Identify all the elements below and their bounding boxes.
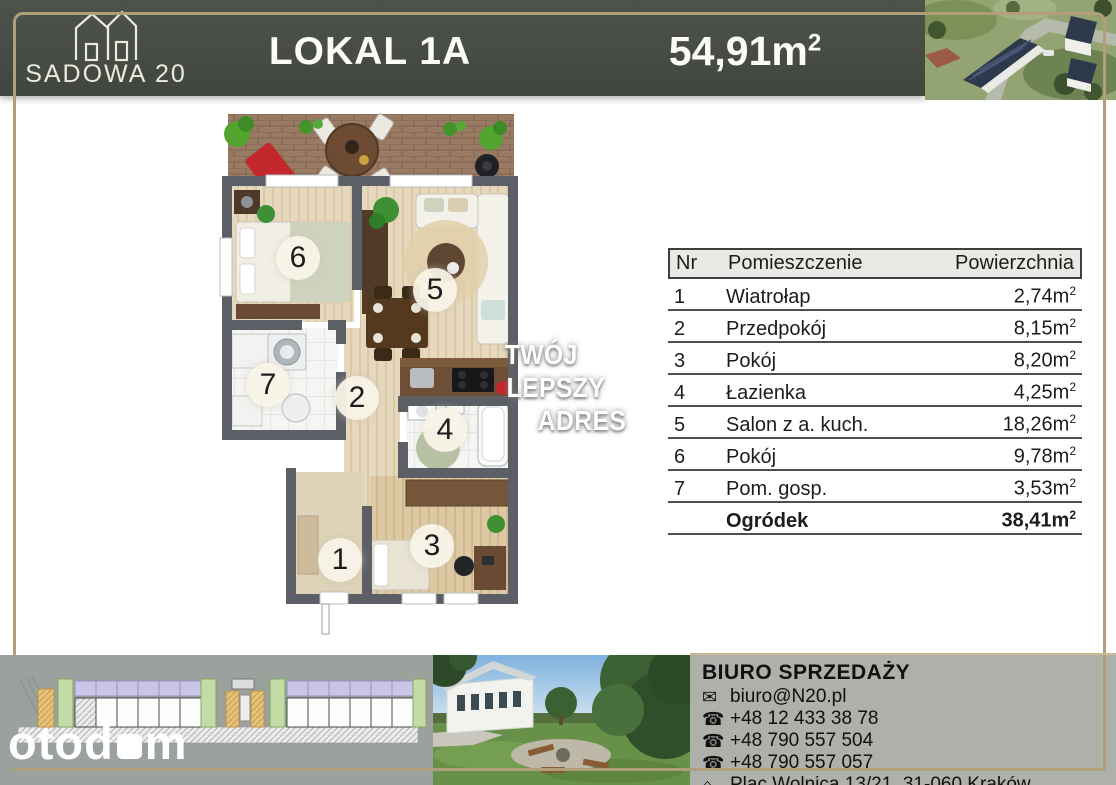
email-line: ✉ biuro@N20.pl — [702, 686, 1116, 708]
rooms-table: Nr Pomieszczenie Powierzchnia 1Wiatrołap… — [668, 248, 1082, 535]
room-number-4: 4 — [423, 408, 467, 452]
total-area: 54,91m2 — [625, 28, 865, 75]
gold-bottom-line — [13, 768, 1106, 771]
footer-left-panel: otodm — [0, 655, 433, 785]
room-number-3: 3 — [410, 524, 454, 568]
developer-logo: SADOWA 20 — [16, 4, 196, 94]
header-bar: SADOWA 20 LOKAL 1A 54,91m2 — [0, 0, 925, 96]
phone-value: +48 790 557 504 — [730, 730, 1116, 752]
flyer-page: SADOWA 20 LOKAL 1A 54,91m2 — [0, 0, 1116, 785]
brand-logo: otodm — [8, 715, 188, 770]
phone-icon: ☎ — [702, 709, 730, 730]
phone-icon: ☎ — [702, 731, 730, 752]
room-number-6: 6 — [276, 236, 320, 280]
address-value: Plac Wolnica 13/21, 31-060 Kraków — [730, 774, 1116, 785]
garden-photo — [433, 655, 690, 785]
room-number-1: 1 — [318, 538, 362, 582]
table-row: 4Łazienka4,25m2 — [668, 375, 1082, 407]
table-row: 1Wiatrołap2,74m2 — [668, 279, 1082, 311]
address-line: ⌂ Plac Wolnica 13/21, 31-060 Kraków — [702, 774, 1116, 785]
houses-icon — [64, 10, 148, 62]
brand-square-icon — [117, 734, 142, 759]
table-row: 6Pokój9,78m2 — [668, 439, 1082, 471]
phone-value: +48 12 433 38 78 — [730, 708, 1116, 730]
unit-title: LOKAL 1A — [230, 30, 510, 74]
logo-text: SADOWA 20 — [16, 60, 196, 89]
phone-line: ☎ +48 790 557 504 — [702, 730, 1116, 752]
room-number-7: 7 — [246, 363, 290, 407]
table-row: 2Przedpokój8,15m2 — [668, 311, 1082, 343]
email-icon: ✉ — [702, 687, 730, 708]
room-number-5: 5 — [413, 268, 457, 312]
aerial-photo — [925, 0, 1116, 100]
table-header: Nr Pomieszczenie Powierzchnia — [668, 248, 1082, 279]
sales-office-title: BIURO SPRZEDAŻY — [702, 661, 1116, 685]
room-number-2: 2 — [335, 376, 379, 420]
email-value: biuro@N20.pl — [730, 686, 1116, 708]
home-icon: ⌂ — [702, 775, 730, 785]
table-row-garden: Ogródek38,41m2 — [668, 503, 1082, 535]
area-superscript: 2 — [808, 29, 821, 56]
watermark-slogan: TWÓJ LEPSZY ADRES — [505, 338, 628, 437]
phone-line: ☎ +48 12 433 38 78 — [702, 708, 1116, 730]
sales-office-panel: BIURO SPRZEDAŻY ✉ biuro@N20.pl ☎ +48 12 … — [690, 653, 1116, 785]
table-row: 5Salon z a. kuch.18,26m2 — [668, 407, 1082, 439]
gold-right-line — [1103, 655, 1106, 768]
table-row: 7Pom. gosp.3,53m2 — [668, 471, 1082, 503]
table-row: 3Pokój8,20m2 — [668, 343, 1082, 375]
